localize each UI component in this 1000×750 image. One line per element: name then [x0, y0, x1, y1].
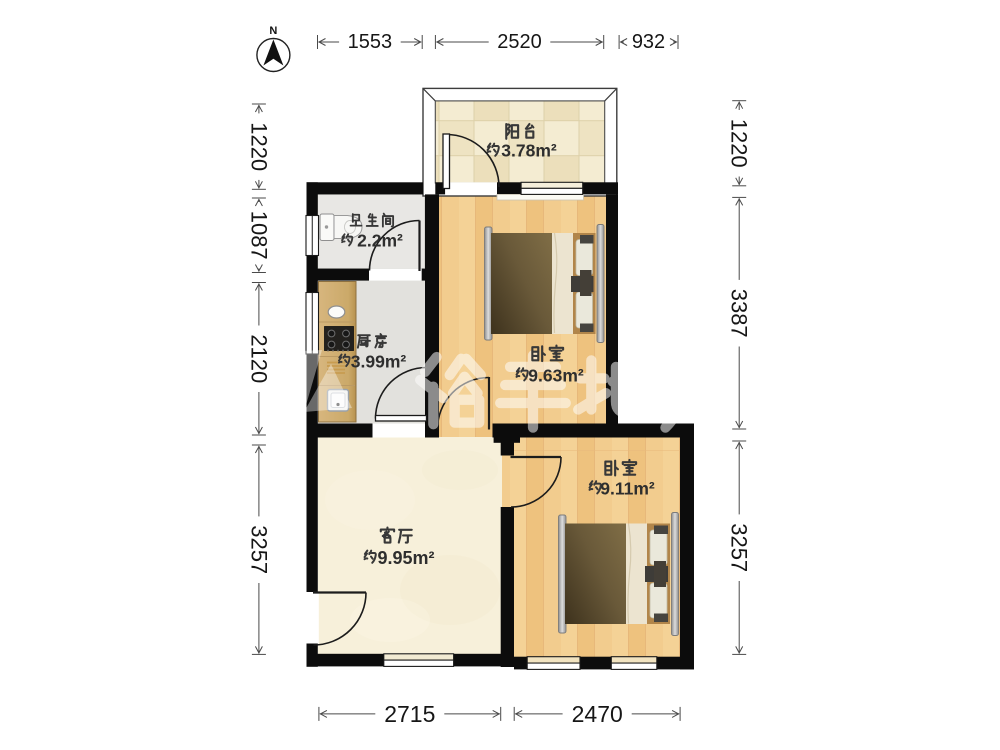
svg-text:932: 932	[632, 31, 665, 53]
svg-text:2120: 2120	[246, 334, 271, 383]
svg-text:1087: 1087	[246, 211, 271, 260]
svg-text:3.99m²: 3.99m²	[351, 352, 407, 372]
svg-text:3257: 3257	[727, 523, 752, 572]
svg-text:9.95m²: 9.95m²	[377, 548, 434, 568]
svg-text:2520: 2520	[497, 31, 542, 53]
svg-text:3387: 3387	[727, 289, 752, 338]
svg-text:N: N	[269, 25, 277, 37]
svg-text:1220: 1220	[246, 122, 271, 171]
svg-text:1220: 1220	[727, 119, 752, 168]
svg-text:9.11m²: 9.11m²	[600, 479, 655, 499]
svg-text:2470: 2470	[572, 701, 623, 727]
svg-text:1553: 1553	[348, 31, 393, 53]
svg-text:3257: 3257	[246, 525, 271, 574]
svg-text:9.63m²: 9.63m²	[528, 366, 584, 386]
svg-text:3.78m²: 3.78m²	[501, 141, 557, 161]
svg-text:2715: 2715	[384, 701, 435, 727]
svg-text:2.2m²: 2.2m²	[357, 231, 403, 251]
